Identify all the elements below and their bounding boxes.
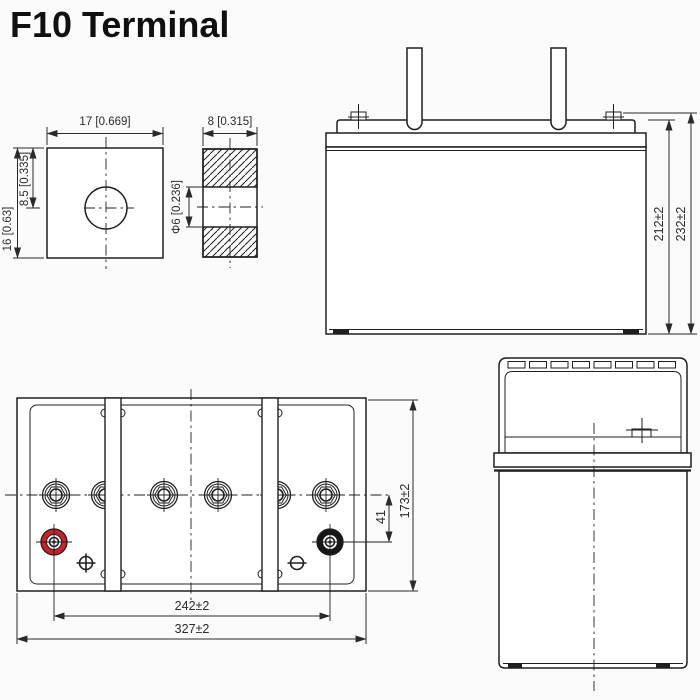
terminal-post-left xyxy=(407,48,422,130)
technical-drawing xyxy=(0,0,700,700)
foot-right xyxy=(656,664,670,668)
strap-band-right xyxy=(262,398,278,591)
strap-band-left xyxy=(105,398,121,591)
dim-terminal-offset-label: 41 xyxy=(374,510,388,524)
foot-left xyxy=(333,330,349,334)
dim-terminal-width-label: 17 [0.669] xyxy=(79,116,130,128)
dim-terminal-height-label: 16 [0.63] xyxy=(2,207,14,252)
battery-end-view xyxy=(494,358,691,691)
foot-left xyxy=(508,664,522,668)
dim-terminal-thickness-label: 8 [0.315] xyxy=(208,116,253,128)
foot-right xyxy=(623,330,639,334)
drawing-sheet: F10 Terminal 17 [0.669] 16 [0.63] 8.5 [0… xyxy=(0,0,700,700)
dim-container-height-label: 212±2 xyxy=(652,207,666,242)
dim-terminal-width xyxy=(47,127,163,145)
dim-overall-length-label: 327±2 xyxy=(175,622,210,636)
dim-terminal-pitch-label: 242±2 xyxy=(175,599,210,613)
dim-terminal-hole-offset-label: 8.5 [0.335] xyxy=(19,152,31,206)
terminal-post-right xyxy=(551,48,566,130)
terminal-section-view xyxy=(186,127,263,268)
dim-overall-width-label: 173±2 xyxy=(398,484,412,519)
battery-top-view xyxy=(5,389,418,644)
dim-terminal-hole-diameter-label: Φ6 [0.236] xyxy=(171,180,183,234)
dim-overall-height-label: 232±2 xyxy=(674,207,688,242)
terminal-front-view xyxy=(13,127,163,269)
page-title: F10 Terminal xyxy=(10,4,229,46)
battery-side-view xyxy=(326,48,697,334)
